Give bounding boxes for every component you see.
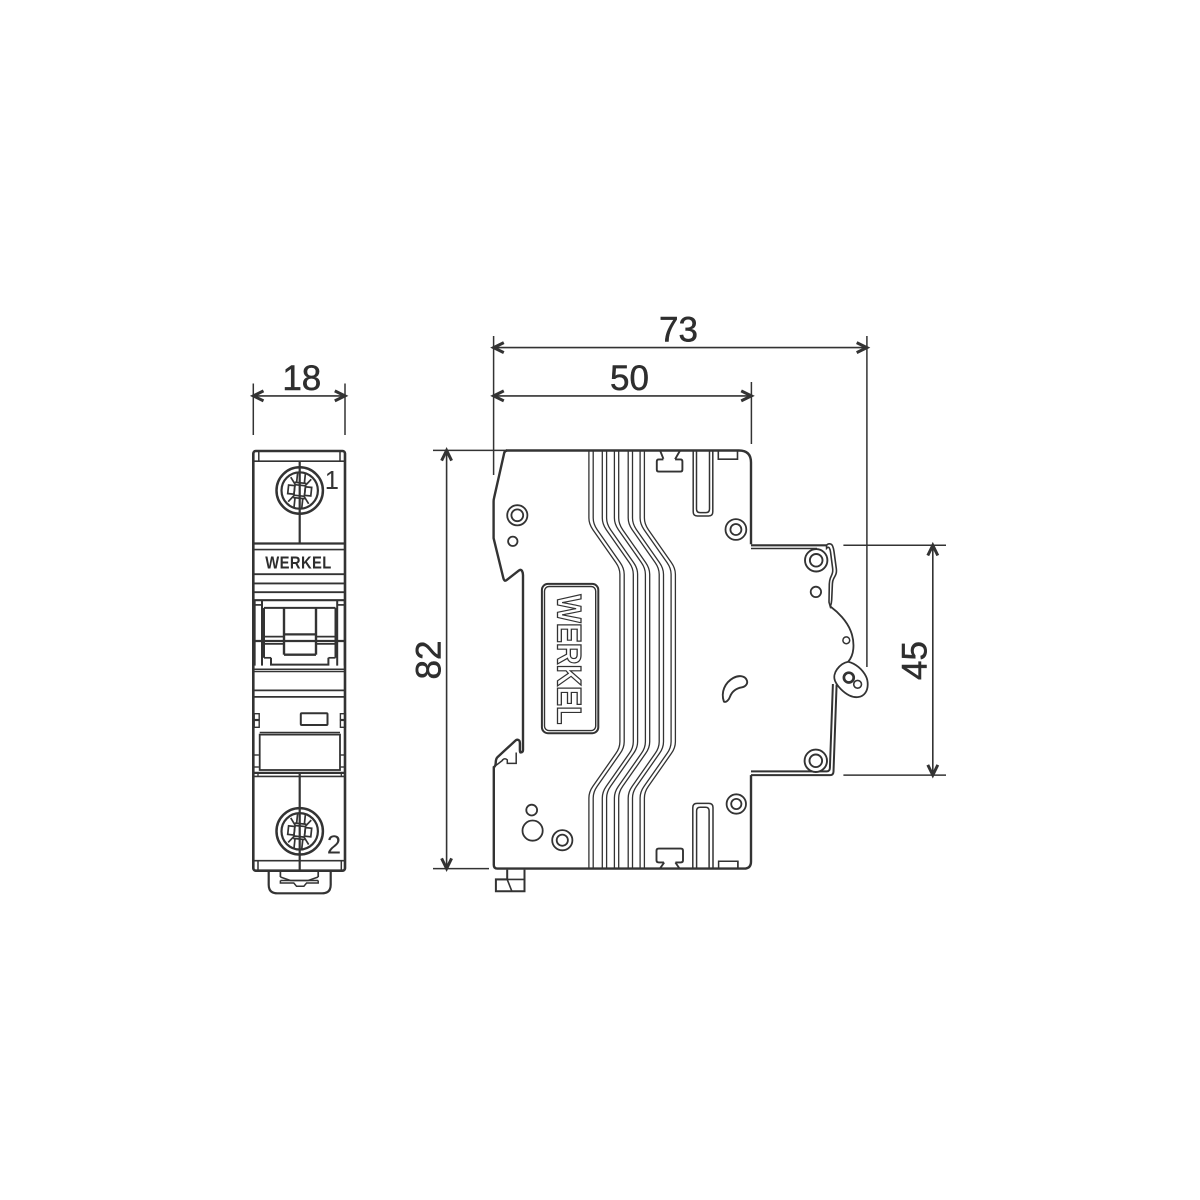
- svg-text:2: 2: [327, 831, 341, 859]
- svg-text:1: 1: [325, 467, 339, 495]
- svg-text:45: 45: [895, 641, 934, 680]
- svg-text:WERKEL: WERKEL: [550, 595, 588, 725]
- svg-text:50: 50: [610, 359, 649, 398]
- svg-text:73: 73: [659, 311, 698, 350]
- svg-text:82: 82: [409, 641, 448, 680]
- svg-text:WERKEL: WERKEL: [265, 553, 332, 573]
- svg-text:18: 18: [282, 359, 321, 398]
